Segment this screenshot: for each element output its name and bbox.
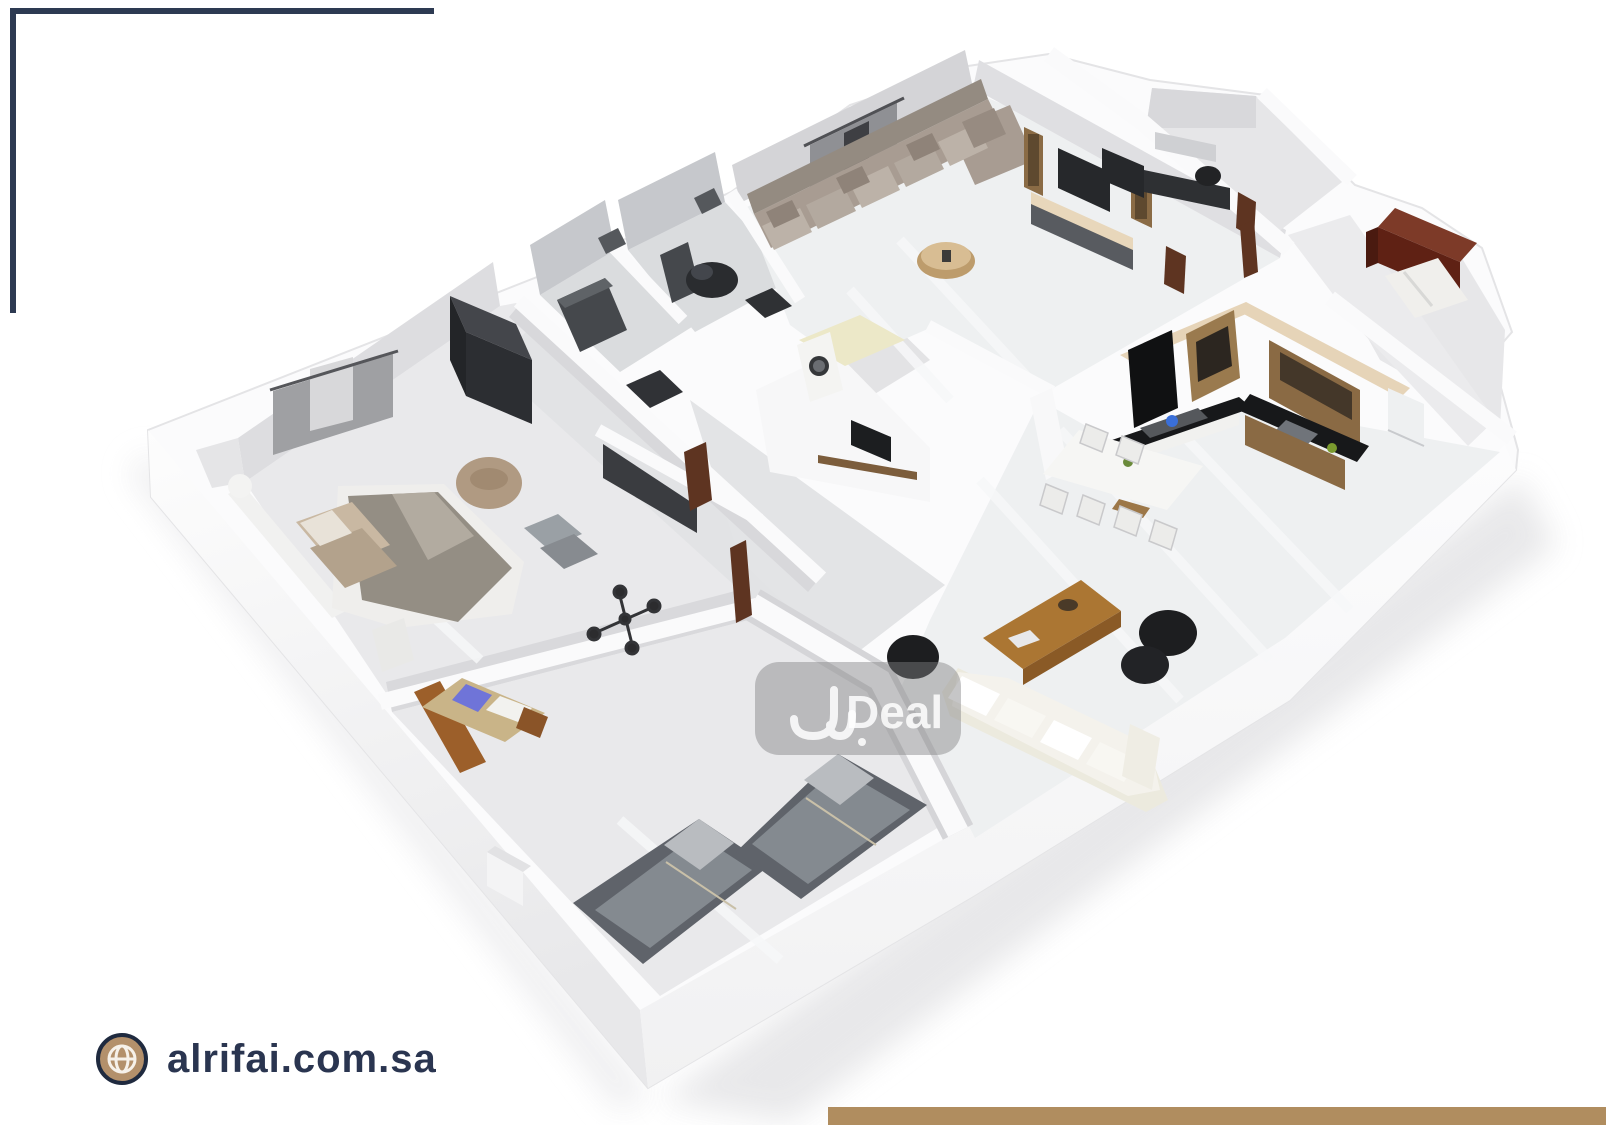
svg-text:alrifai.com.sa: alrifai.com.sa xyxy=(167,1037,437,1081)
svg-text:Deal: Deal xyxy=(846,686,943,738)
